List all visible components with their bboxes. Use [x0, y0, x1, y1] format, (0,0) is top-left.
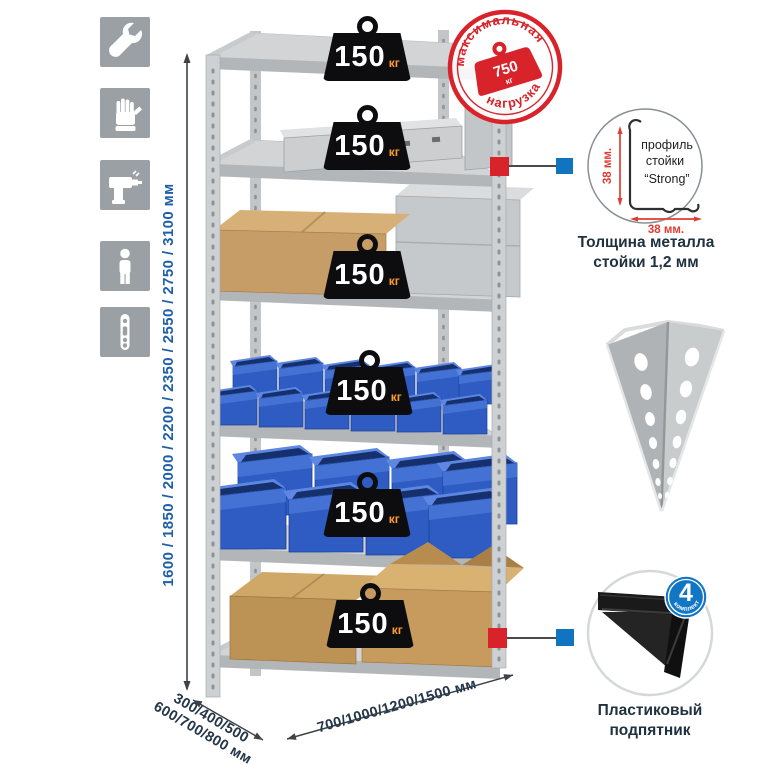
- wrench-glyph: [100, 17, 150, 67]
- load-badge-shelf-3: 150 кг: [323, 234, 411, 299]
- gloves-glyph: [100, 88, 150, 138]
- load-unit: кг: [392, 623, 403, 637]
- drill-icon: [100, 160, 150, 210]
- load-value: 150: [336, 375, 387, 408]
- profile-label-3: “Strong”: [644, 172, 689, 186]
- foot-caption: Пластиковый подпятник: [567, 701, 733, 742]
- width-dimension: 700/1000/1200/1500 мм: [287, 674, 513, 740]
- weight-plate: 150 кг: [323, 489, 411, 537]
- person-icon: [100, 241, 150, 291]
- load-value: 150: [334, 259, 385, 292]
- load-unit: кг: [389, 145, 400, 159]
- height-dimension-label: 1600 / 1850 / 2000 / 2200 / 2350 / 2550 …: [160, 183, 177, 586]
- product-infographic: 1600 / 1850 / 2000 / 2200 / 2350 / 2550 …: [0, 0, 765, 765]
- max-load-stamp: максимальная нагрузка 750 кг: [434, 0, 576, 138]
- load-value: 150: [334, 41, 385, 74]
- load-unit: кг: [389, 274, 400, 288]
- wrench-icon: [100, 17, 150, 67]
- load-value: 150: [334, 497, 385, 530]
- callout-marker-red-top: [490, 157, 509, 176]
- weight-plate: 150 кг: [323, 33, 411, 81]
- gloves-icon: [100, 88, 150, 138]
- load-unit: кг: [389, 512, 400, 526]
- person-glyph: [100, 241, 150, 291]
- weight-plate: 150 кг: [323, 251, 411, 299]
- profile-label-2: стойки: [646, 154, 684, 168]
- weight-handle-ring: [357, 16, 378, 37]
- callout-marker-red-bottom: [488, 628, 507, 648]
- weight-plate: 150 кг: [325, 367, 413, 415]
- load-badge-shelf-2: 150 кг: [323, 105, 411, 170]
- rack-post-icon: [100, 307, 150, 357]
- badge-count-value: 4: [679, 579, 693, 607]
- weight-plate: 150 кг: [326, 600, 414, 648]
- load-value: 150: [334, 130, 385, 163]
- width-dimension-label: 700/1000/1200/1500 мм: [315, 676, 478, 736]
- load-badge-shelf-1: 150 кг: [323, 16, 411, 81]
- weight-handle-ring: [357, 234, 378, 255]
- weight-plate: 150 кг: [323, 122, 411, 170]
- rack-post-glyph: [100, 307, 150, 357]
- callout-bottom: [488, 628, 574, 648]
- load-badge-shelf-4: 150 кг: [325, 350, 413, 415]
- callout-marker-blue-top: [556, 158, 573, 174]
- profile-caption: Толщина металла стойки 1,2 мм: [550, 233, 742, 274]
- post-profile-detail: 38 мм. 38 мм. профиль стойки “Strong”: [588, 109, 702, 236]
- weight-handle-ring: [357, 105, 378, 126]
- load-badge-shelf-5: 150 кг: [323, 472, 411, 537]
- profile-label-1: профиль: [641, 138, 693, 152]
- load-unit: кг: [389, 56, 400, 70]
- load-badge-shelf-6: 150 кг: [326, 583, 414, 648]
- corner-post-photo: [607, 322, 724, 512]
- height-dimension: 1600 / 1850 / 2000 / 2200 / 2350 / 2550 …: [160, 53, 191, 691]
- callout-top: [490, 157, 573, 176]
- load-unit: кг: [391, 390, 402, 404]
- weight-handle-ring: [357, 472, 378, 493]
- load-value: 150: [337, 608, 388, 641]
- callout-marker-blue-bottom: [556, 629, 574, 646]
- weight-handle-ring: [360, 583, 381, 604]
- weight-handle-ring: [359, 350, 380, 371]
- drill-glyph: [100, 160, 150, 210]
- profile-dim-vertical: 38 мм.: [602, 148, 614, 184]
